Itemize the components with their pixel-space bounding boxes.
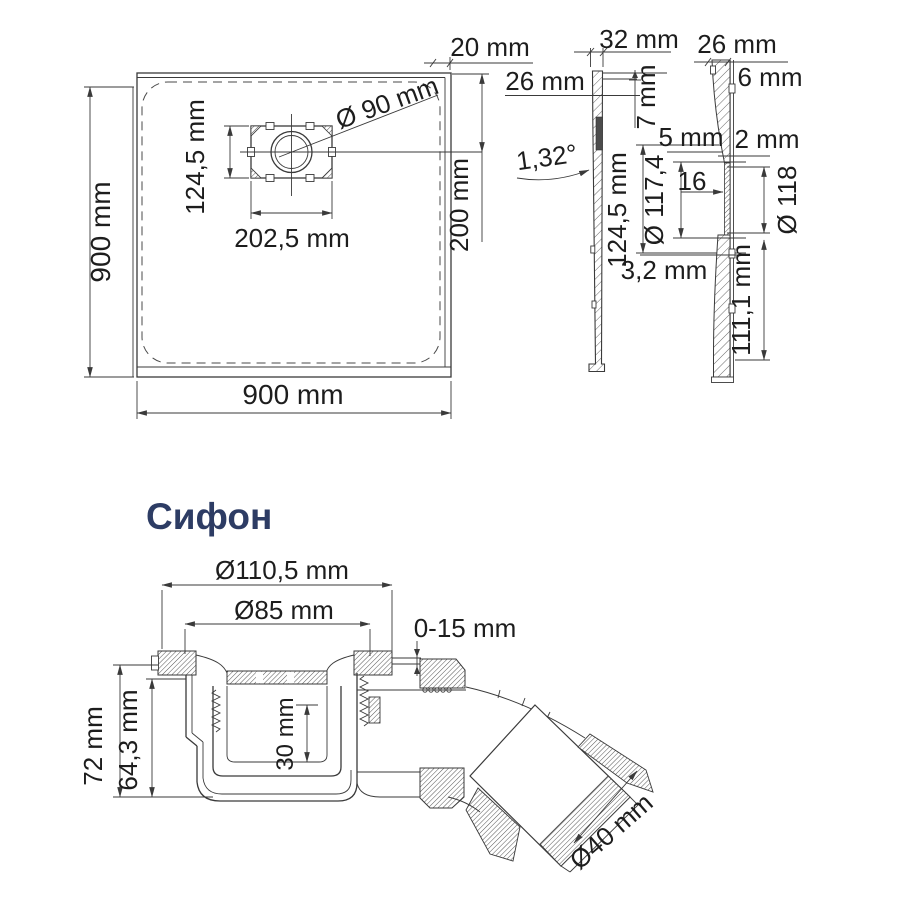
technical-drawing-sheet: 900 mm 900 mm 124,5 mm 202,5 mm Ø 90 mm xyxy=(0,0,900,900)
total-height-label: 72 mm xyxy=(78,706,108,785)
section-front-depth-label: 111,1 mm xyxy=(726,244,756,356)
section-front-top-width-label: 26 mm xyxy=(697,29,776,59)
section-front-lip-label: 3,2 mm xyxy=(621,255,708,285)
dim-grate-diameter: Ø85 mm xyxy=(185,595,370,656)
section-side-lip-label: 7 mm xyxy=(631,65,661,130)
union-nut xyxy=(420,768,464,808)
section-front-gap-label: 2 mm xyxy=(735,124,800,154)
dim-section-side-top-width: 32 mm xyxy=(574,24,679,67)
flange-diameter-label: Ø110,5 mm xyxy=(215,555,349,585)
dim-drain-box-height: 124,5 mm xyxy=(180,99,249,215)
section-front-wall-label: 5 mm xyxy=(659,122,724,152)
dim-section-front-step: 16 xyxy=(678,166,723,196)
section-front-outer-d-label: Ø 118 xyxy=(772,166,802,235)
drain-grate xyxy=(227,671,327,684)
siphon-title: Сифон xyxy=(146,496,272,537)
section-front-step-label: 16 xyxy=(678,166,707,196)
tray-top-view: 900 mm 900 mm 124,5 mm 202,5 mm Ø 90 mm xyxy=(84,32,533,419)
dim-drain-diameter: Ø 90 mm xyxy=(279,70,442,157)
section-side-slope-label: 1,32° xyxy=(514,138,579,176)
drain-box-width-label: 202,5 mm xyxy=(234,223,350,253)
outlet-elbow xyxy=(448,687,653,872)
grate-diameter-label: Ø85 mm xyxy=(234,595,334,625)
dim-section-side-lip: 7 mm xyxy=(629,65,661,130)
right-flange-bolt xyxy=(354,651,392,675)
dim-section-side-rim: 26 mm xyxy=(505,66,640,96)
dim-section-side-slope: 1,32° xyxy=(514,138,589,180)
tray-width-label: 900 mm xyxy=(242,379,343,410)
section-front-edge-label: 6 mm xyxy=(738,62,803,92)
section-front-inner-d-label: Ø 117,4 xyxy=(639,155,669,246)
drain-diameter-label: Ø 90 mm xyxy=(332,70,443,135)
tray-height-label: 900 mm xyxy=(85,181,116,282)
tray-section-side: 32 mm 26 mm 7 mm 1,32° 124,5 mm xyxy=(505,24,746,372)
drain-offset-label: 200 mm xyxy=(444,158,474,252)
siphon-drawing: Сифон xyxy=(78,496,659,875)
dim-tray-height: 900 mm xyxy=(84,87,134,377)
section-side-recess-label: 124,5 mm xyxy=(602,152,632,268)
drain-flange-side xyxy=(596,117,603,150)
dim-section-front-wall: 5 mm xyxy=(659,122,724,152)
dim-section-front-depth: 111,1 mm xyxy=(726,240,770,360)
dim-edge-width: 20 mm xyxy=(424,32,533,70)
left-flange-bolt xyxy=(158,651,196,675)
dim-cup-depth: 30 mm xyxy=(272,697,318,770)
body-height-label: 64,3 mm xyxy=(113,689,143,790)
adjustment-clamp xyxy=(420,659,465,688)
dim-total-height: 72 mm xyxy=(78,665,213,797)
dim-section-front-outer-d: Ø 118 xyxy=(727,166,802,235)
dim-body-height: 64,3 mm xyxy=(113,679,186,797)
drawing-canvas: 900 mm 900 mm 124,5 mm 202,5 mm Ø 90 mm xyxy=(0,0,900,900)
dim-section-front-top-width: 26 mm xyxy=(694,29,788,66)
adjustment-range-label: 0-15 mm xyxy=(414,613,517,643)
edge-width-label: 20 mm xyxy=(450,32,529,62)
cup-depth-label: 30 mm xyxy=(272,697,299,770)
section-side-top-width-label: 32 mm xyxy=(599,24,678,54)
dim-drain-box-width: 202,5 mm xyxy=(234,181,350,253)
section-side-rim-label: 26 mm xyxy=(505,66,584,96)
dim-tray-width: 900 mm xyxy=(137,379,451,419)
drain-box-height-label: 124,5 mm xyxy=(180,99,210,215)
